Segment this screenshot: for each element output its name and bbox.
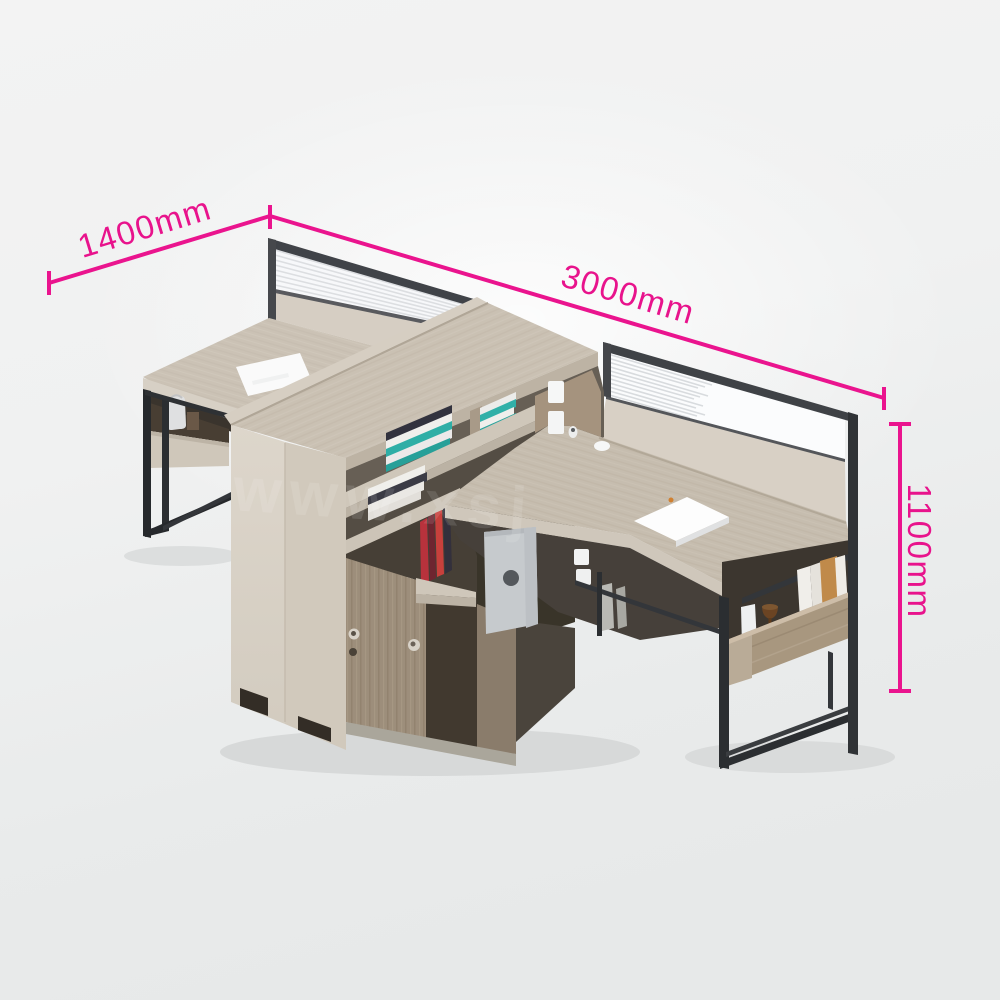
- svg-text:1100mm: 1100mm: [901, 484, 938, 619]
